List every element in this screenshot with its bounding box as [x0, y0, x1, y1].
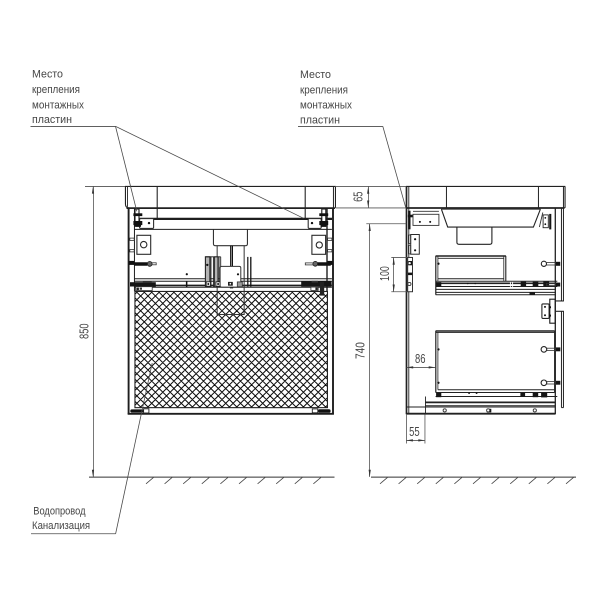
svg-text:100: 100 [378, 266, 392, 281]
svg-text:пластин: пластин [32, 114, 72, 126]
svg-text:740: 740 [353, 342, 368, 359]
svg-text:Место: Место [32, 69, 63, 81]
svg-text:55: 55 [409, 424, 420, 439]
svg-text:Водопровод: Водопровод [33, 505, 86, 517]
svg-text:Место: Место [300, 69, 331, 81]
svg-text:пластин: пластин [300, 115, 340, 127]
svg-text:65: 65 [352, 191, 366, 201]
svg-text:крепления: крепления [32, 84, 80, 96]
svg-text:Канализация: Канализация [32, 520, 90, 532]
svg-text:монтажных: монтажных [300, 100, 352, 112]
svg-text:850: 850 [76, 323, 91, 339]
svg-text:крепления: крепления [300, 84, 348, 96]
svg-text:86: 86 [415, 351, 426, 366]
svg-text:монтажных: монтажных [32, 99, 84, 111]
